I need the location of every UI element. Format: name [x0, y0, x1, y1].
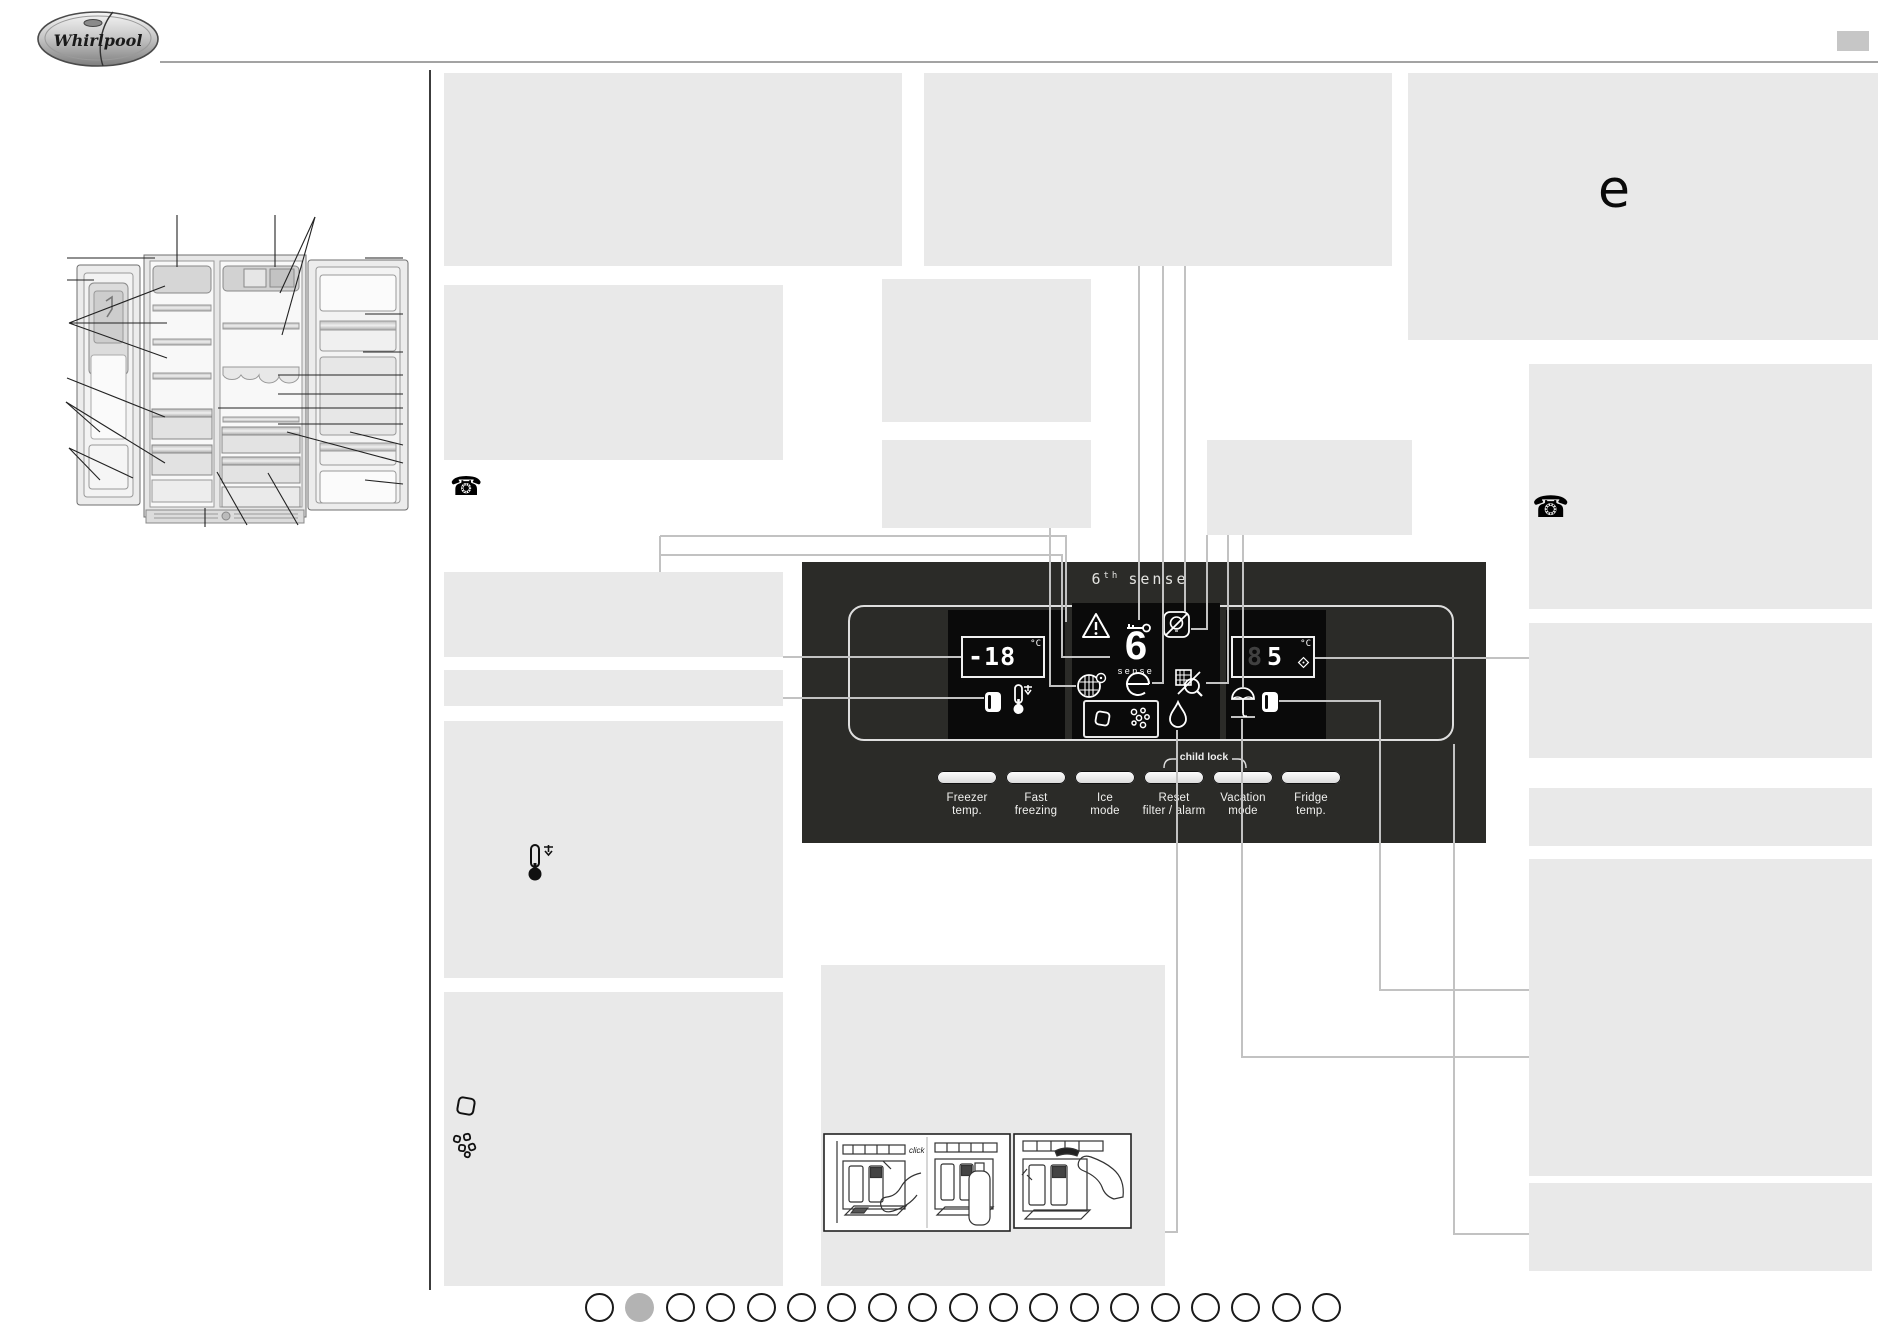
manual-page: Whirlpool e ☎ ☎ [0, 0, 1889, 1333]
text-placeholder-block [444, 572, 783, 657]
page-dot [827, 1293, 856, 1322]
fridge-temp-unit: °C [1300, 639, 1311, 649]
text-placeholder-block [444, 670, 783, 706]
page-dot [666, 1293, 695, 1322]
text-placeholder-block [1529, 623, 1872, 758]
page-dot [989, 1293, 1018, 1322]
text-placeholder-block [444, 285, 783, 460]
six-sense-logo-six: 6 [1108, 626, 1164, 666]
page-dot [1312, 1293, 1341, 1322]
six-sense-logo: 6 sense [1108, 626, 1164, 676]
water-drop-icon [1168, 700, 1188, 730]
text-placeholder-block [1529, 1183, 1872, 1271]
page-dot [1151, 1293, 1180, 1322]
fridge-interior [220, 261, 302, 507]
page-dot [868, 1293, 897, 1322]
whirlpool-logo: Whirlpool [35, 8, 165, 70]
vacation-mode-button[interactable] [1213, 771, 1273, 784]
crushed-ice-icon [450, 1132, 482, 1160]
fridge-right-door [308, 260, 408, 510]
fridge-temp-ghost-digit: 8 [1247, 642, 1262, 671]
button-label: Vacationmode [1204, 792, 1282, 818]
warning-icon [1081, 612, 1111, 639]
ice-cube-icon [454, 1094, 480, 1120]
header-rule [160, 61, 1878, 63]
fridge-temp-display: 8 5 °C [1231, 636, 1315, 678]
thermometer-down-icon [523, 843, 557, 883]
fridge-door-icon [1261, 690, 1279, 714]
ice-mode-indicator-box [1083, 700, 1159, 738]
text-placeholder-block [924, 73, 1392, 266]
fridge-temp-value: 5 [1267, 642, 1282, 671]
panel-title-six: 6 [1091, 570, 1103, 588]
eco-mode-icon [1124, 670, 1152, 698]
freezer-temp-value: -18 [968, 642, 1016, 671]
page-dot [908, 1293, 937, 1322]
button-label: Freezertemp. [928, 792, 1006, 818]
page-dot [625, 1293, 654, 1322]
text-placeholder-block [1207, 440, 1412, 535]
panel-title-word: sense [1128, 570, 1188, 588]
text-placeholder-block [1529, 364, 1872, 609]
button-label: Fastfreezing [997, 792, 1075, 818]
phone-icon: ☎ [1532, 490, 1569, 525]
freezer-temp-display: -18 °C [961, 636, 1045, 678]
ice-mode-button[interactable] [1075, 771, 1135, 784]
text-placeholder-block [444, 992, 783, 1286]
page-dot [706, 1293, 735, 1322]
page-corner-box [1837, 31, 1869, 51]
fridge-diagram [58, 205, 418, 535]
crushed-ice-icon [1127, 706, 1153, 732]
fridge-left-door [77, 265, 140, 505]
page-dot [1231, 1293, 1260, 1322]
sensor-off-icon [1172, 666, 1206, 700]
text-placeholder-block [882, 440, 1091, 528]
text-placeholder-block [1529, 788, 1872, 846]
fridge-base-grille [146, 510, 304, 523]
button-label: Resetfilter / alarm [1135, 792, 1213, 818]
filter-status-icon [1297, 656, 1310, 669]
fast-freezing-button[interactable] [1006, 771, 1066, 784]
reset-filter-alarm-button[interactable] [1144, 771, 1204, 784]
page-dot [1029, 1293, 1058, 1322]
page-dot [787, 1293, 816, 1322]
panel-title-sup: th [1104, 571, 1121, 581]
ice-cube-icon [1093, 709, 1113, 729]
light-off-icon [1162, 610, 1191, 639]
page-dot [1272, 1293, 1301, 1322]
panel-title: 6thsense [1060, 570, 1220, 588]
text-placeholder-block [821, 965, 1165, 1286]
button-label: Icemode [1066, 792, 1144, 818]
whirlpool-logo-text: Whirlpool [54, 31, 143, 50]
freezer-temp-button[interactable] [937, 771, 997, 784]
page-dot [949, 1293, 978, 1322]
dispenser-illustration: click [823, 1133, 1135, 1235]
text-placeholder-block [1529, 859, 1872, 1176]
page-dot [585, 1293, 614, 1322]
water-filter-icon [1076, 670, 1108, 700]
page-dot [747, 1293, 776, 1322]
button-label: Fridgetemp. [1272, 792, 1350, 818]
text-placeholder-block [1408, 73, 1878, 340]
page-dot [1070, 1293, 1099, 1322]
freezer-door-icon [984, 690, 1002, 714]
fridge-temp-button[interactable] [1281, 771, 1341, 784]
text-placeholder-block [444, 73, 902, 266]
column-divider [429, 70, 431, 1290]
click-note: click [909, 1146, 926, 1155]
energy-e-symbol: e [1598, 160, 1630, 220]
text-placeholder-block [882, 279, 1091, 422]
page-dot [1110, 1293, 1139, 1322]
text-placeholder-block [444, 721, 783, 978]
page-dot [1191, 1293, 1220, 1322]
child-lock-label: child lock [1168, 751, 1240, 763]
vacation-umbrella-icon [1229, 687, 1257, 719]
temp-down-icon [1010, 684, 1034, 716]
phone-icon: ☎ [450, 472, 482, 502]
freezer-temp-unit: °C [1030, 639, 1041, 649]
